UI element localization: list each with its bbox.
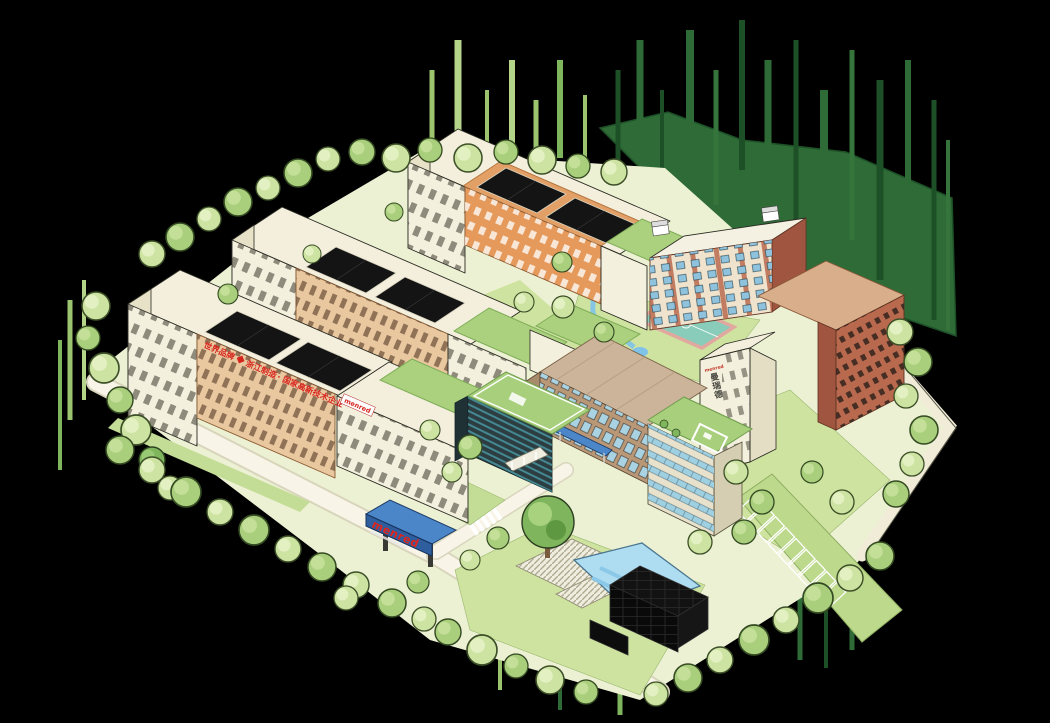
campus-map-svg: 世界品牌 浙江制造 · 国家高新技术企业 menred menred 曼瑞德 bbox=[0, 0, 1050, 723]
rooftop-unit bbox=[761, 206, 779, 222]
campus-illustration: 世界品牌 浙江制造 · 国家高新技术企业 menred menred 曼瑞德 bbox=[0, 0, 1050, 723]
rooftop-unit bbox=[651, 220, 669, 236]
